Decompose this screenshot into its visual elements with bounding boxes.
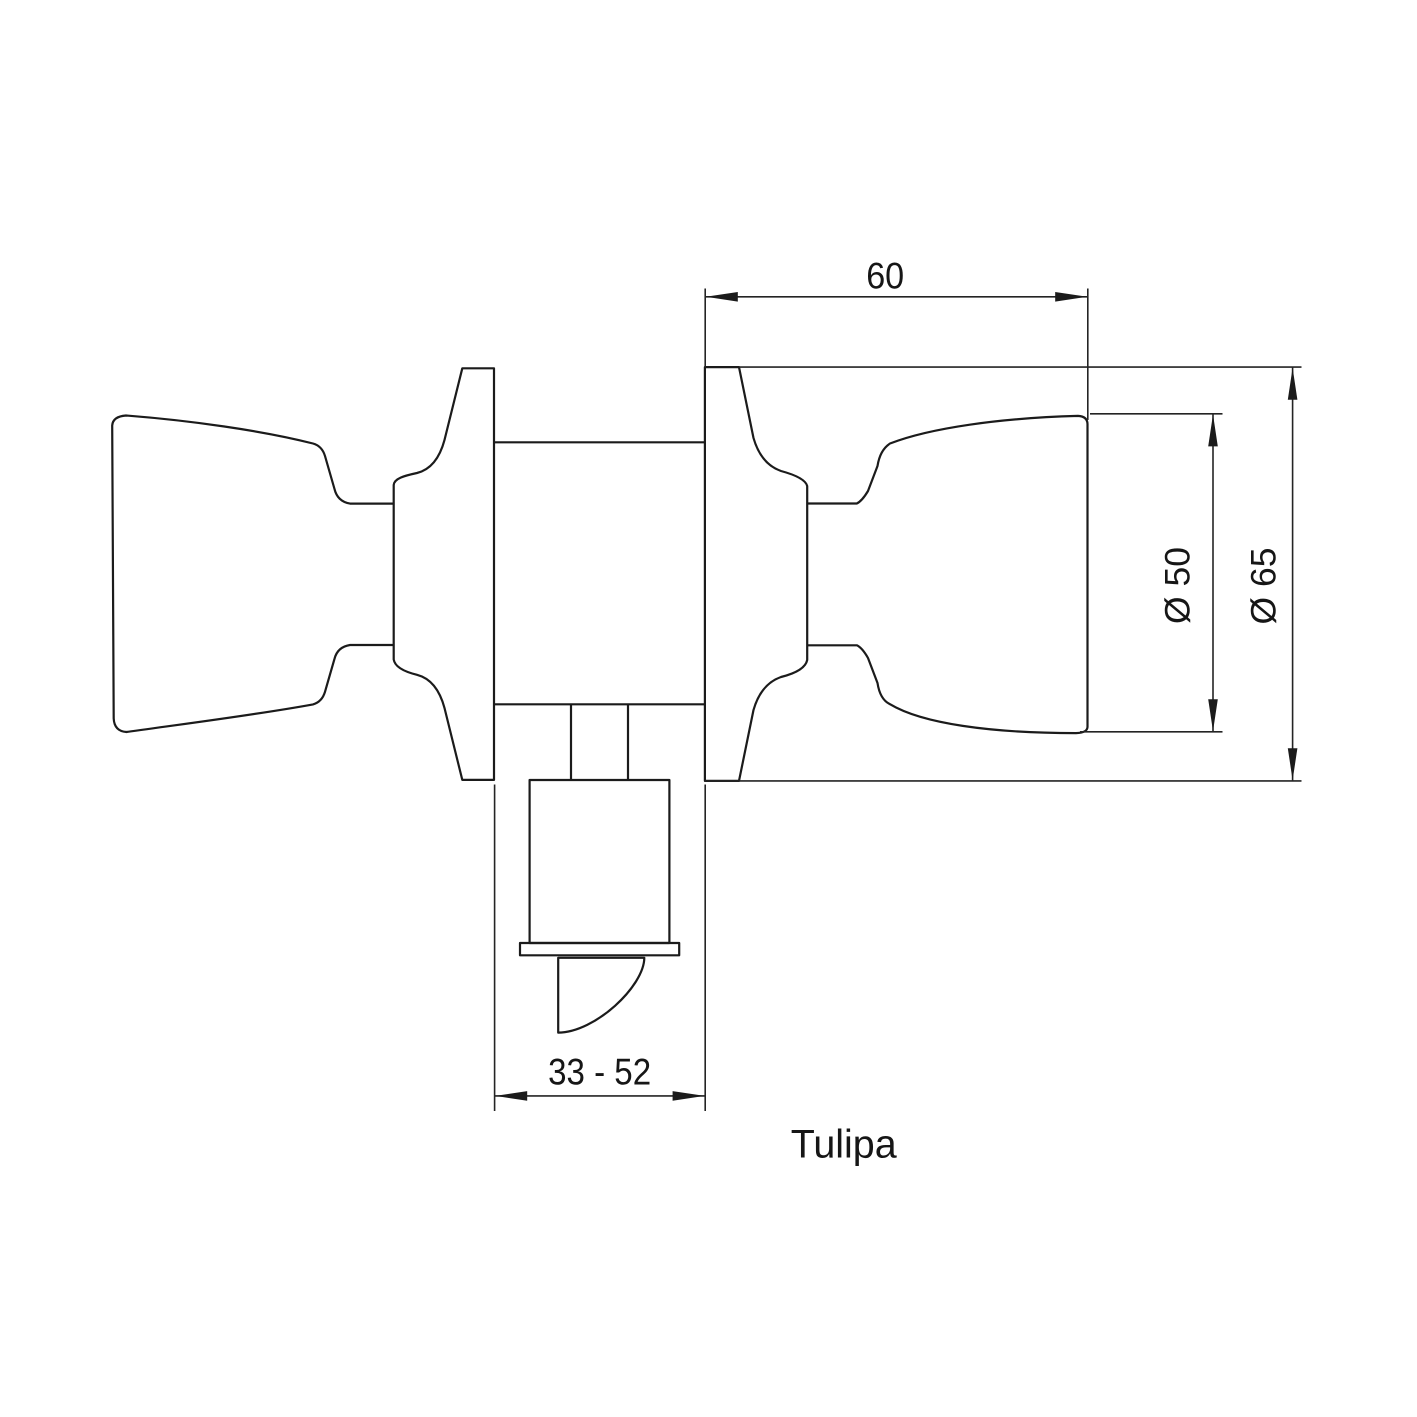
svg-text:Ø 50: Ø 50 — [1158, 547, 1198, 624]
svg-text:33 - 52: 33 - 52 — [548, 1051, 651, 1093]
svg-text:60: 60 — [866, 255, 904, 297]
svg-text:Ø 65: Ø 65 — [1243, 548, 1283, 625]
svg-text:Tulipa: Tulipa — [791, 1123, 898, 1167]
